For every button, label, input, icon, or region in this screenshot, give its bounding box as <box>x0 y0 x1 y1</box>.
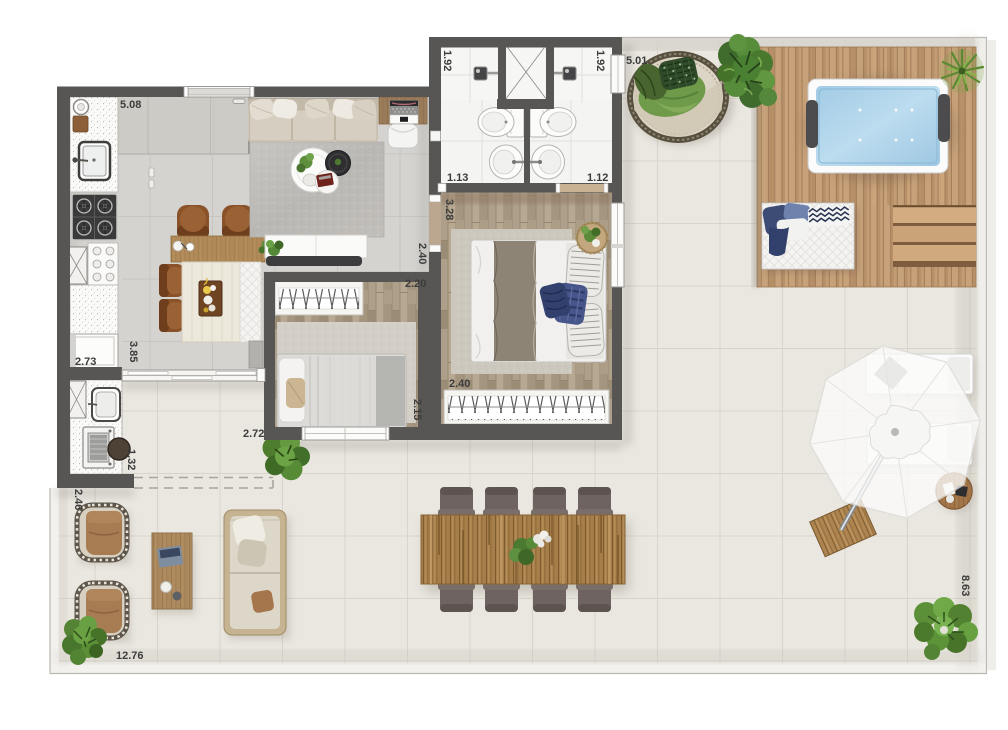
svg-text:2.15: 2.15 <box>411 399 423 420</box>
svg-text:12.76: 12.76 <box>116 650 144 662</box>
svg-text:8.63: 8.63 <box>959 575 971 596</box>
svg-text:5.08: 5.08 <box>120 99 141 111</box>
svg-text:1.13: 1.13 <box>447 172 468 184</box>
svg-text:2.46: 2.46 <box>72 489 84 510</box>
svg-text:1.12: 1.12 <box>587 172 608 184</box>
svg-text:1.32: 1.32 <box>125 449 137 470</box>
svg-text:1.92: 1.92 <box>594 50 606 71</box>
svg-text:2.40: 2.40 <box>416 243 428 264</box>
svg-text:2.73: 2.73 <box>75 356 96 368</box>
svg-text:2.40: 2.40 <box>449 378 470 390</box>
svg-text:3.28: 3.28 <box>443 199 455 220</box>
svg-text:5.01: 5.01 <box>626 55 647 67</box>
svg-text:2.72: 2.72 <box>243 428 264 440</box>
svg-text:1.92: 1.92 <box>441 50 453 71</box>
svg-text:2.20: 2.20 <box>405 278 426 290</box>
svg-text:3.85: 3.85 <box>127 341 139 362</box>
